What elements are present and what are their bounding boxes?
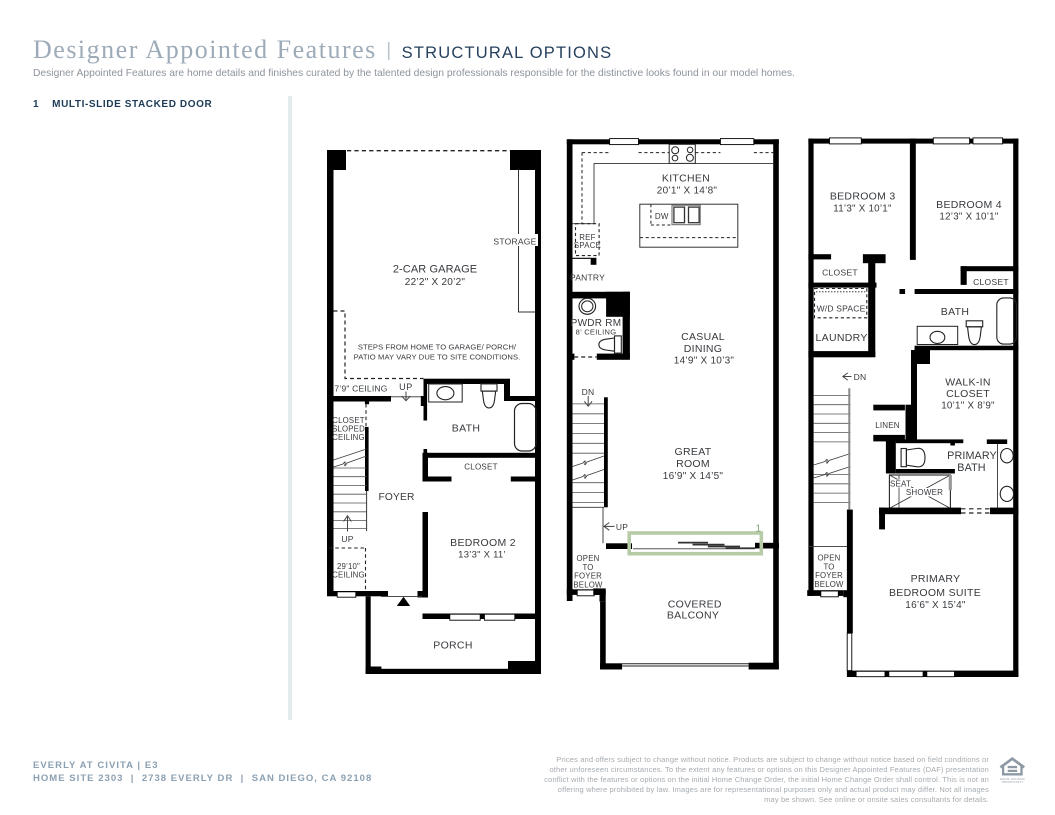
svg-text:20’1" X 14’8": 20’1" X 14’8": [657, 186, 718, 197]
svg-text:UP: UP: [616, 522, 628, 532]
svg-text:GREAT: GREAT: [675, 446, 712, 458]
svg-text:CLOSET: CLOSET: [946, 388, 990, 400]
svg-text:PANTRY: PANTRY: [570, 272, 605, 282]
svg-text:11’3" X 10’1": 11’3" X 10’1": [833, 203, 892, 214]
svg-text:CLOSET: CLOSET: [973, 277, 1009, 287]
svg-text:BEDROOM 4: BEDROOM 4: [936, 199, 1002, 211]
svg-text:BALCONY: BALCONY: [667, 609, 719, 621]
svg-text:BATH: BATH: [941, 306, 969, 318]
svg-text:DN: DN: [582, 387, 595, 397]
svg-text:BELOW: BELOW: [573, 580, 603, 589]
svg-text:FOYER: FOYER: [378, 492, 414, 503]
svg-text:SHOWER: SHOWER: [906, 488, 943, 497]
svg-text:BEDROOM SUITE: BEDROOM SUITE: [889, 587, 981, 599]
svg-text:SEAT: SEAT: [890, 479, 911, 488]
svg-text:PRIMARY: PRIMARY: [911, 573, 961, 585]
svg-text:STORAGE: STORAGE: [493, 237, 536, 247]
svg-text:LAUNDRY: LAUNDRY: [816, 332, 868, 344]
svg-text:W/D SPACE: W/D SPACE: [817, 303, 866, 313]
svg-text:PRIMARY: PRIMARY: [947, 450, 997, 462]
svg-text:FOYER: FOYER: [574, 571, 602, 580]
svg-text:ROOM: ROOM: [676, 458, 710, 470]
svg-text:LINEN: LINEN: [875, 421, 900, 430]
svg-text:22’2" X 20’2": 22’2" X 20’2": [405, 277, 466, 288]
svg-text:8’ CEILING: 8’ CEILING: [576, 327, 617, 336]
svg-text:BEDROOM 3: BEDROOM 3: [830, 191, 896, 203]
svg-text:OPEN: OPEN: [577, 554, 600, 563]
svg-text:16’9" X 14’5": 16’9" X 14’5": [663, 471, 724, 482]
svg-text:UP: UP: [399, 382, 413, 392]
svg-text:STEPS FROM HOME TO GARAGE/ POR: STEPS FROM HOME TO GARAGE/ PORCH/: [358, 343, 517, 352]
svg-text:16’6" X 15’4": 16’6" X 15’4": [905, 600, 966, 611]
svg-text:14’9" X 10’3": 14’9" X 10’3": [674, 355, 735, 366]
svg-text:DW: DW: [655, 212, 669, 221]
svg-text:CEILING: CEILING: [332, 433, 365, 442]
svg-text:OPEN: OPEN: [818, 553, 841, 562]
svg-text:DINING: DINING: [684, 343, 723, 355]
svg-text:PATIO MAY VARY DUE TO SITE CON: PATIO MAY VARY DUE TO SITE CONDITIONS.: [354, 352, 521, 361]
svg-text:12’3" X 10’1": 12’3" X 10’1": [939, 211, 999, 222]
svg-text:BEDROOM 2: BEDROOM 2: [450, 537, 516, 549]
svg-text:CLOSET: CLOSET: [464, 463, 498, 472]
svg-text:2-CAR GARAGE: 2-CAR GARAGE: [393, 264, 477, 276]
svg-text:7’9" CEILING: 7’9" CEILING: [334, 383, 387, 393]
svg-text:13’3" X 11’: 13’3" X 11’: [458, 550, 506, 561]
svg-text:BATH: BATH: [452, 423, 480, 435]
svg-text:KITCHEN: KITCHEN: [662, 172, 710, 184]
svg-text:FOYER: FOYER: [815, 571, 843, 580]
svg-text:10’1" X 8’9": 10’1" X 8’9": [941, 400, 995, 411]
svg-text:1: 1: [755, 524, 761, 535]
svg-text:PORCH: PORCH: [433, 639, 472, 651]
svg-text:DN: DN: [854, 372, 867, 382]
svg-text:BELOW: BELOW: [814, 580, 844, 589]
svg-text:CEILING: CEILING: [332, 570, 365, 579]
svg-text:BATH: BATH: [957, 462, 985, 474]
svg-text:UP: UP: [341, 534, 353, 544]
svg-text:CASUAL: CASUAL: [681, 331, 725, 343]
svg-text:SPACE: SPACE: [574, 241, 601, 250]
svg-text:WALK-IN: WALK-IN: [945, 376, 990, 388]
svg-text:CLOSET: CLOSET: [822, 267, 858, 277]
